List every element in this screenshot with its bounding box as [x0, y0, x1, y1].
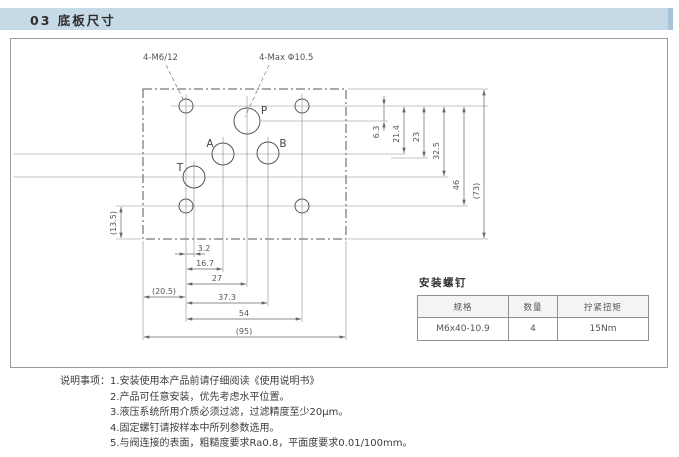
dim-right-46: 46: [452, 180, 461, 190]
dim-right-6-3: 6.3: [372, 126, 381, 139]
dim-right-23: 23: [412, 132, 421, 142]
dim-right-21-4: 21.4: [392, 125, 401, 143]
mounting-holes-callout: 4-M6/12: [143, 53, 178, 63]
dim-right-73: (73): [472, 183, 481, 199]
note-item-5: 5.与阀连接的表面，粗糙度要求Ra0.8，平面度要求0.01/100mm。: [110, 436, 413, 452]
section-header-bar: 03 底板尺寸: [0, 8, 673, 30]
col-header-quantity: 数量: [509, 296, 558, 318]
mounting-holes: [179, 99, 309, 213]
drawing-panel: 4-M6/12 4-Max Φ10.5 P A B T 6.3 21.4 23 …: [10, 38, 668, 368]
notes-section: 说明事项： 1.安装使用本产品前请仔细阅读《使用说明书》 2.产品可任意安装，优…: [60, 374, 413, 452]
notes-label: 说明事项：: [60, 374, 110, 452]
col-header-spec: 规格: [418, 296, 509, 318]
dim-bottom-16-7: 16.7: [196, 259, 214, 268]
cell-spec: M6x40-10.9: [418, 318, 509, 341]
header-bar-end-cap: [668, 8, 673, 30]
port-p-label: P: [261, 105, 267, 117]
dim-bottom-20-5: (20.5): [152, 287, 176, 296]
port-a-label: A: [206, 138, 214, 150]
dim-bottom-95: (95): [236, 327, 252, 336]
notes-list: 1.安装使用本产品前请仔细阅读《使用说明书》 2.产品可任意安装，优先考虑水平位…: [110, 374, 413, 452]
note-item-3: 3.液压系统所用介质必须过滤，过滤精度至少20μm。: [110, 405, 413, 421]
dim-bottom-3-2: 3.2: [198, 244, 211, 253]
plate-outline: [143, 89, 346, 239]
col-header-torque: 拧紧扭矩: [558, 296, 649, 318]
dim-right-32-5: 32.5: [432, 142, 441, 160]
dim-left-13-5: (13.5): [109, 211, 118, 235]
dim-bottom-27: 27: [212, 274, 222, 283]
mounting-screw-table-section: 安装螺钉 规格 数量 拧紧扭矩 M6x40-10.9 4 15Nm: [417, 275, 649, 341]
max-port-diameter-callout: 4-Max Φ10.5: [259, 53, 313, 63]
cell-torque: 15Nm: [558, 318, 649, 341]
table-row: M6x40-10.9 4 15Nm: [418, 318, 649, 341]
dim-bottom-54: 54: [239, 309, 249, 318]
cell-quantity: 4: [509, 318, 558, 341]
note-item-2: 2.产品可任意安装，优先考虑水平位置。: [110, 390, 413, 406]
mounting-screw-table: 规格 数量 拧紧扭矩 M6x40-10.9 4 15Nm: [417, 295, 649, 341]
port-t-label: T: [176, 162, 184, 174]
note-item-4: 4.固定螺钉请按样本中所列参数选用。: [110, 421, 413, 437]
note-item-1: 1.安装使用本产品前请仔细阅读《使用说明书》: [110, 374, 413, 390]
table-header-row: 规格 数量 拧紧扭矩: [418, 296, 649, 318]
port-b-label: B: [279, 138, 286, 150]
mounting-screw-table-title: 安装螺钉: [419, 275, 649, 290]
dim-bottom-37-3: 37.3: [218, 293, 236, 302]
section-title: 03 底板尺寸: [30, 10, 116, 29]
